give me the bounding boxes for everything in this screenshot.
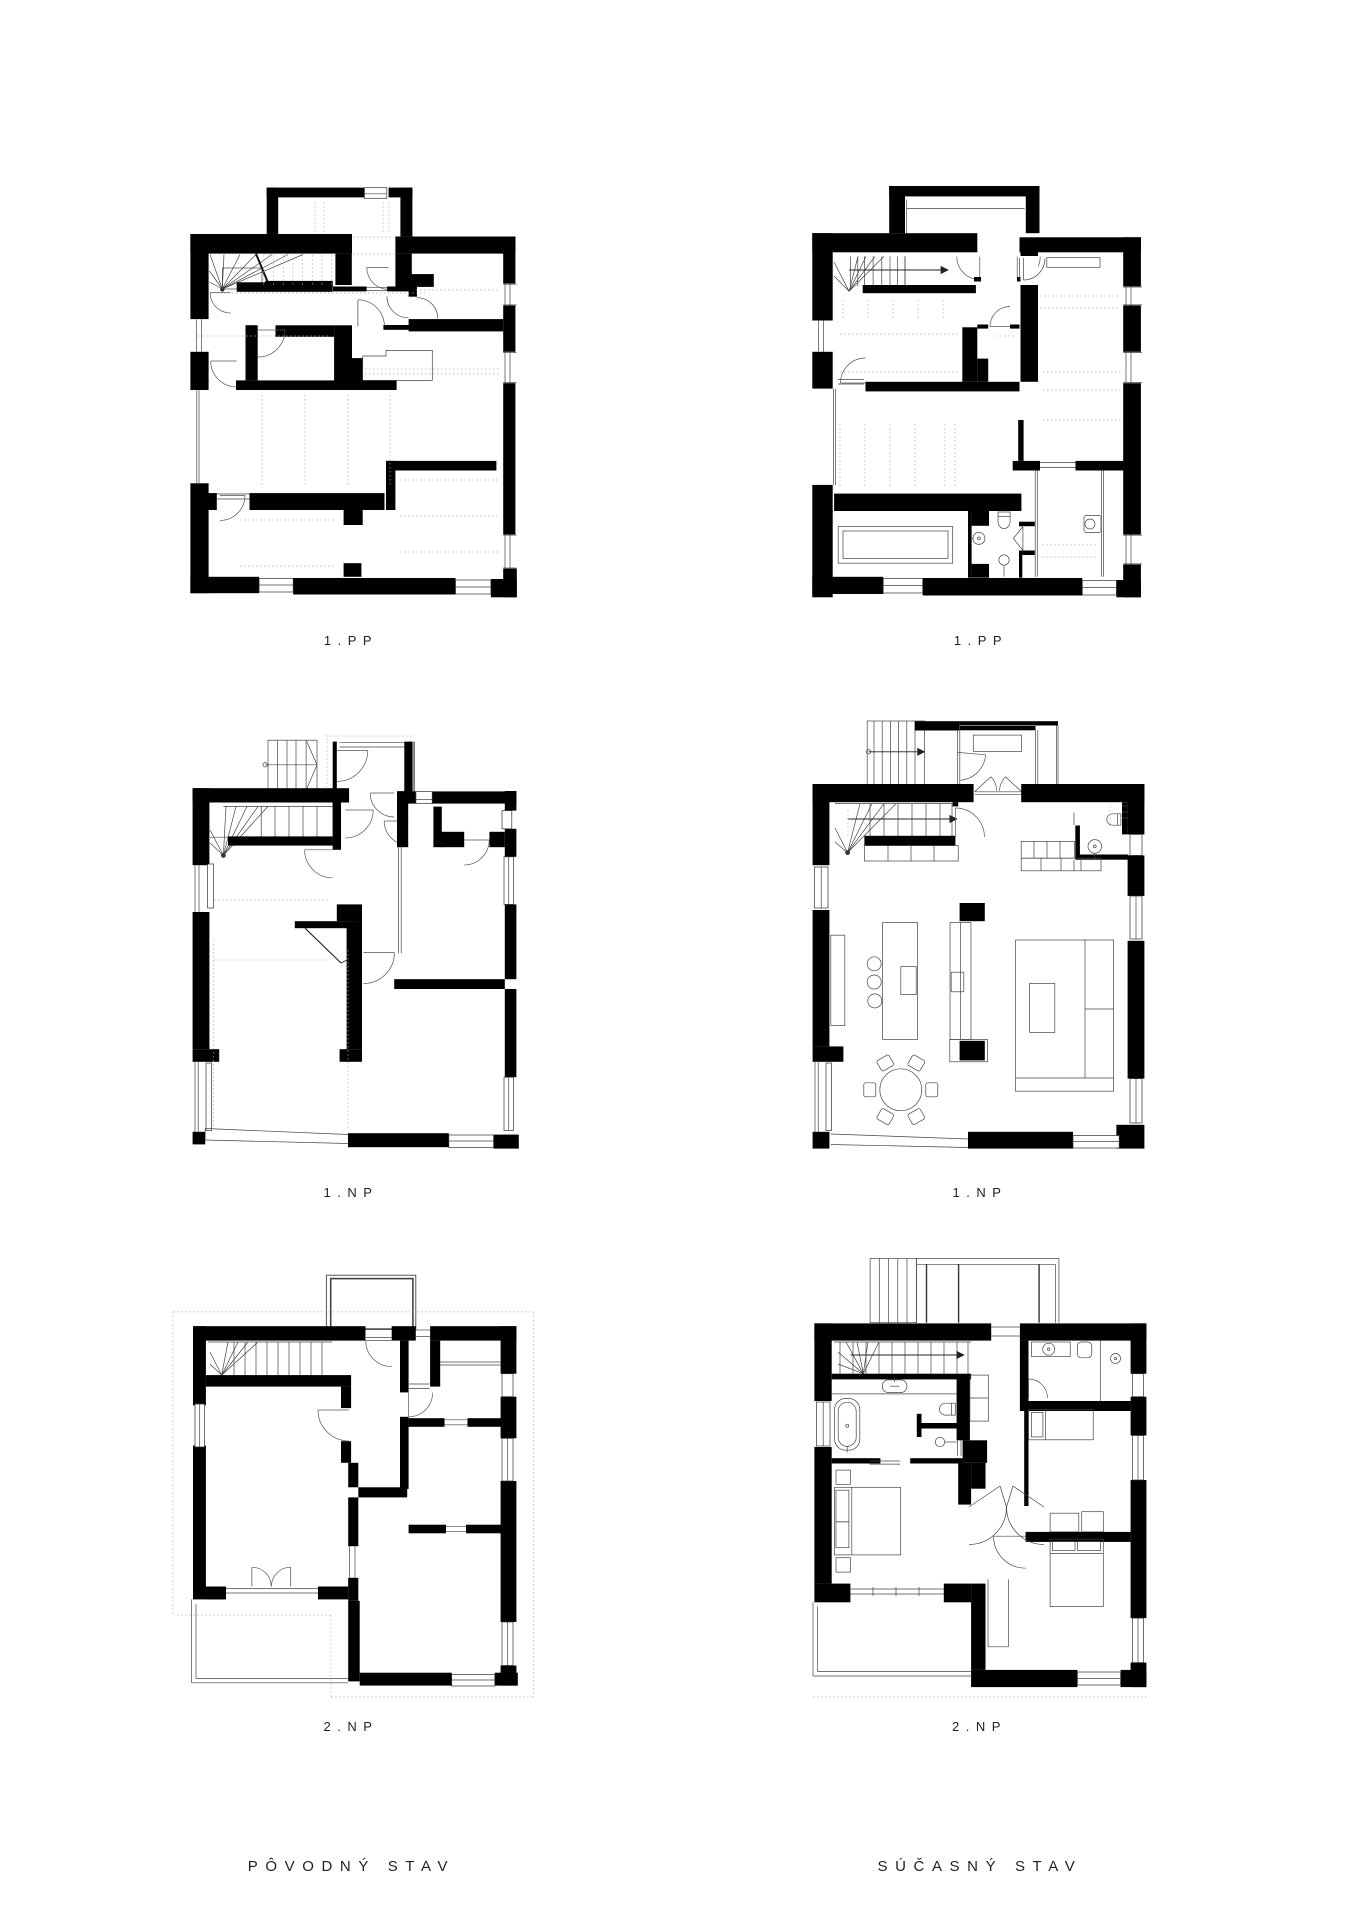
svg-text:SÚČASNÝ STAV: SÚČASNÝ STAV bbox=[877, 1858, 1082, 1875]
svg-text:2.NP: 2.NP bbox=[324, 1719, 379, 1734]
svg-text:1.NP: 1.NP bbox=[953, 1185, 1008, 1200]
svg-text:1.PP: 1.PP bbox=[954, 633, 1008, 648]
svg-text:1.NP: 1.NP bbox=[324, 1185, 379, 1200]
svg-text:2.NP: 2.NP bbox=[952, 1719, 1007, 1734]
svg-text:PÔVODNÝ STAV: PÔVODNÝ STAV bbox=[248, 1858, 455, 1875]
svg-text:1.PP: 1.PP bbox=[324, 633, 378, 648]
